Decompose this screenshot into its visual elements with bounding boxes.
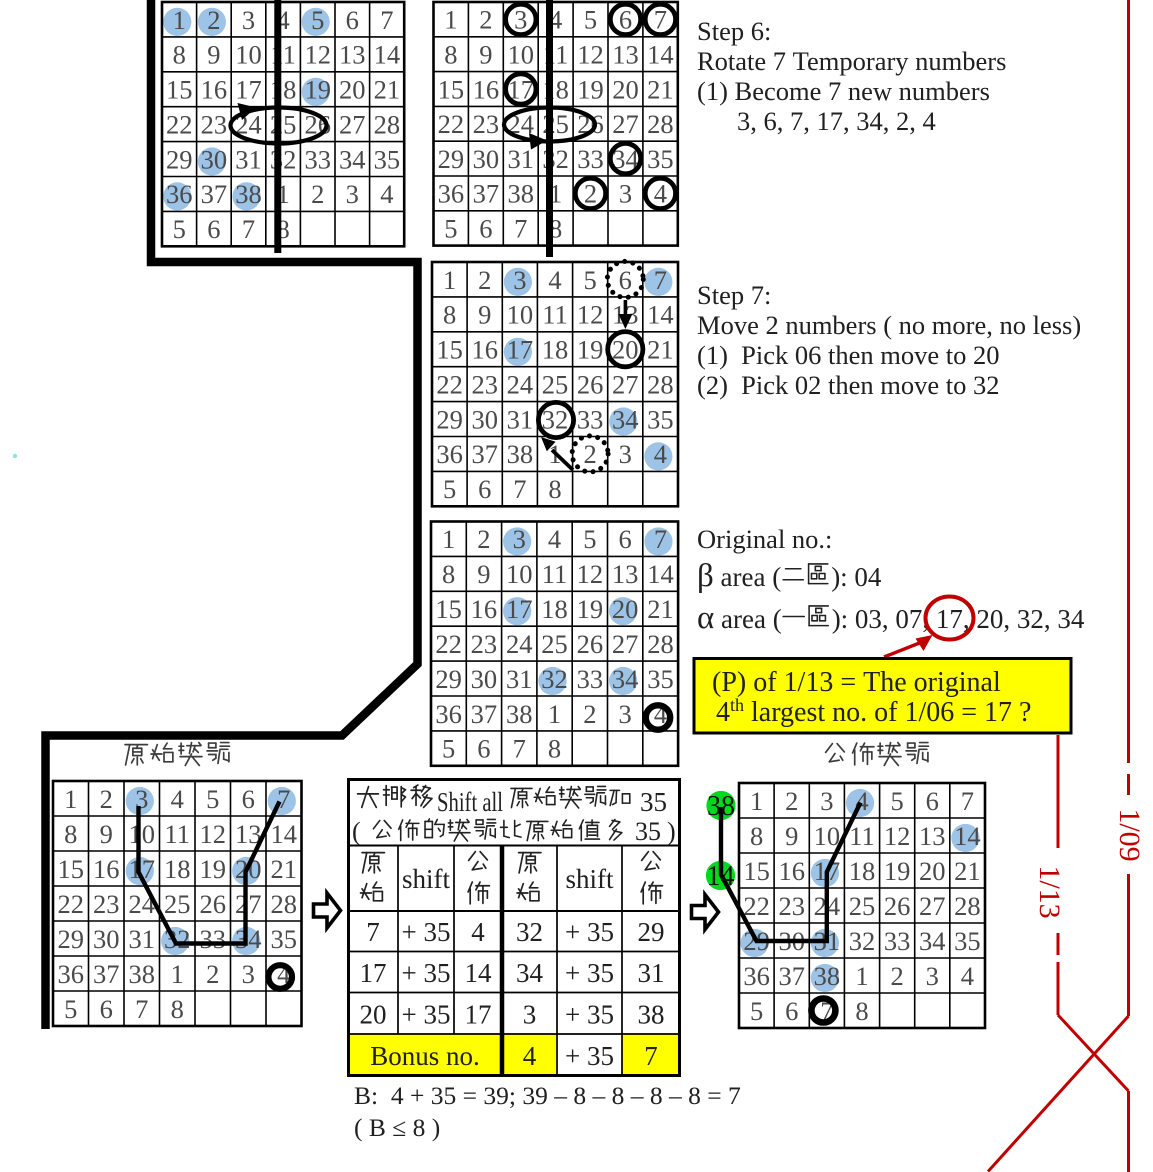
svg-text:9: 9: [785, 821, 798, 851]
svg-text:20: 20: [612, 335, 639, 365]
svg-text:36: 36: [58, 959, 85, 989]
svg-text:38: 38: [235, 179, 262, 209]
svg-text:14: 14: [374, 40, 401, 70]
svg-text:9: 9: [100, 819, 113, 849]
svg-text:18: 18: [164, 854, 191, 884]
svg-text:13: 13: [919, 821, 946, 851]
svg-text:22: 22: [58, 889, 85, 919]
svg-text:18: 18: [542, 335, 569, 365]
svg-text:14: 14: [647, 559, 674, 589]
svg-text:10: 10: [129, 819, 156, 849]
svg-text:5: 5: [442, 734, 455, 764]
svg-text:19: 19: [577, 594, 604, 624]
svg-text:9: 9: [478, 300, 491, 330]
svg-text:13: 13: [612, 559, 639, 589]
svg-text:4: 4: [716, 697, 730, 728]
svg-text:+ 35: + 35: [565, 1000, 614, 1030]
svg-text:17: 17: [360, 958, 387, 988]
svg-text:34: 34: [612, 664, 639, 694]
svg-text:th: th: [730, 695, 744, 715]
svg-text:23: 23: [471, 629, 498, 659]
svg-text:23: 23: [778, 891, 805, 921]
svg-text:): 03, 07, 17, 20, 32, 34: ): 03, 07, 17, 20, 32, 34: [832, 604, 1085, 634]
svg-text:14: 14: [647, 300, 674, 330]
svg-text:33: 33: [884, 926, 911, 956]
svg-text:9: 9: [477, 559, 490, 589]
svg-text:35: 35: [374, 144, 401, 174]
svg-text:12: 12: [577, 40, 604, 70]
svg-text:33: 33: [577, 664, 604, 694]
svg-text:29: 29: [58, 924, 85, 954]
svg-text:35: 35: [640, 787, 667, 817]
svg-text:21: 21: [647, 74, 674, 104]
svg-text:8: 8: [548, 474, 561, 504]
svg-text:8: 8: [750, 821, 763, 851]
svg-text:32: 32: [516, 917, 543, 947]
svg-text:(P) of 1/13 = The original: (P) of 1/13 = The original: [712, 667, 1001, 698]
svg-text:37: 37: [201, 179, 228, 209]
svg-text:2: 2: [583, 699, 596, 729]
svg-text:Step 6:: Step 6:: [697, 16, 771, 46]
svg-text:12: 12: [577, 300, 604, 330]
svg-text:5: 5: [173, 214, 186, 244]
svg-text:+ 35: + 35: [565, 958, 614, 988]
svg-text:16: 16: [471, 594, 498, 624]
svg-text:12: 12: [884, 821, 911, 851]
svg-text:30: 30: [471, 664, 498, 694]
svg-text:2: 2: [583, 439, 596, 469]
svg-text:34: 34: [235, 924, 262, 954]
svg-text:21: 21: [374, 75, 401, 105]
svg-text:20: 20: [919, 856, 946, 886]
svg-text:27: 27: [235, 889, 262, 919]
svg-text:1: 1: [443, 265, 456, 295]
svg-text:6: 6: [100, 994, 113, 1024]
svg-text:14: 14: [465, 958, 493, 988]
svg-text:27: 27: [612, 109, 639, 139]
svg-text:11: 11: [270, 40, 296, 70]
svg-text:27: 27: [339, 109, 366, 139]
svg-text:β: β: [697, 558, 714, 594]
svg-text:largest no. of 1/06 = 17 ?: largest no. of 1/06 = 17 ?: [744, 697, 1031, 728]
svg-text:14: 14: [271, 819, 298, 849]
svg-text:32: 32: [542, 404, 569, 434]
svg-text:8: 8: [855, 996, 868, 1026]
svg-text:35: 35: [647, 404, 674, 434]
svg-text:4: 4: [654, 179, 667, 209]
svg-text:19: 19: [577, 74, 604, 104]
svg-text:16: 16: [473, 74, 500, 104]
svg-text:5: 5: [584, 5, 597, 35]
svg-text:1: 1: [173, 5, 186, 35]
svg-text:32: 32: [270, 144, 297, 174]
svg-text:29: 29: [638, 917, 665, 947]
svg-text:24: 24: [507, 369, 534, 399]
svg-text:8: 8: [443, 300, 456, 330]
svg-text:2: 2: [584, 179, 597, 209]
svg-text:+ 35: + 35: [402, 1000, 451, 1030]
svg-text:10: 10: [508, 40, 535, 70]
svg-text:5: 5: [444, 214, 457, 244]
svg-text:22: 22: [435, 629, 462, 659]
svg-text:16: 16: [201, 75, 228, 105]
svg-text:10: 10: [235, 40, 262, 70]
svg-text:4: 4: [548, 265, 561, 295]
svg-text:31: 31: [129, 924, 156, 954]
svg-text:17: 17: [465, 1000, 492, 1030]
svg-text:35: 35: [647, 664, 674, 694]
svg-text:7: 7: [513, 734, 526, 764]
svg-text:2: 2: [479, 5, 492, 35]
svg-text:16: 16: [93, 854, 120, 884]
svg-text:27: 27: [612, 629, 639, 659]
svg-text:7: 7: [380, 5, 393, 35]
svg-text:30: 30: [473, 144, 500, 174]
svg-text:1/13: 1/13: [1033, 865, 1066, 918]
svg-text:36: 36: [166, 179, 193, 209]
svg-text:5: 5: [206, 784, 219, 814]
svg-text:32: 32: [541, 664, 568, 694]
svg-text:2: 2: [206, 959, 219, 989]
svg-text:30: 30: [201, 144, 228, 174]
svg-text:21: 21: [954, 856, 981, 886]
svg-text:12: 12: [200, 819, 227, 849]
svg-text:24: 24: [506, 629, 533, 659]
svg-text:37: 37: [471, 699, 498, 729]
svg-text:2: 2: [785, 786, 798, 816]
svg-text:6: 6: [477, 734, 490, 764]
svg-text:31: 31: [506, 664, 533, 694]
svg-text:2: 2: [100, 784, 113, 814]
svg-text:( B ≤ 8 ): ( B ≤ 8 ): [354, 1113, 440, 1142]
svg-text:15: 15: [436, 335, 463, 365]
svg-text:23: 23: [471, 369, 498, 399]
svg-text:8: 8: [64, 819, 77, 849]
svg-text:32: 32: [849, 926, 876, 956]
svg-text:20: 20: [360, 1000, 387, 1030]
svg-text:22: 22: [166, 109, 193, 139]
svg-text:6: 6: [619, 5, 632, 35]
svg-text:3: 3: [242, 5, 255, 35]
svg-text:15: 15: [743, 856, 770, 886]
svg-text:3: 3: [514, 5, 527, 35]
svg-text:38: 38: [814, 961, 841, 991]
svg-text:28: 28: [647, 629, 674, 659]
svg-text:3: 3: [926, 961, 939, 991]
svg-text:21: 21: [647, 335, 674, 365]
svg-text:7: 7: [961, 786, 974, 816]
svg-text:18: 18: [270, 75, 297, 105]
svg-text:26: 26: [200, 889, 227, 919]
svg-text:+ 35: + 35: [565, 1041, 614, 1071]
svg-text:7: 7: [277, 784, 290, 814]
svg-text:37: 37: [473, 179, 500, 209]
svg-text:13: 13: [339, 40, 366, 70]
svg-text:38: 38: [129, 959, 156, 989]
svg-text:29: 29: [435, 664, 462, 694]
svg-text:8: 8: [548, 734, 561, 764]
svg-text:28: 28: [647, 109, 674, 139]
svg-text:19: 19: [200, 854, 227, 884]
svg-text:30: 30: [93, 924, 120, 954]
svg-text:(1) Become 7 new numbers: (1) Become 7 new numbers: [697, 76, 990, 106]
svg-text:14: 14: [954, 821, 981, 851]
svg-text:12: 12: [304, 40, 331, 70]
svg-text:25: 25: [164, 889, 191, 919]
svg-text:4: 4: [961, 961, 974, 991]
svg-text:38: 38: [507, 439, 534, 469]
svg-text:Bonus no.: Bonus no.: [370, 1041, 480, 1071]
svg-text:2: 2: [478, 265, 491, 295]
svg-text:1: 1: [855, 961, 868, 991]
svg-text:3: 3: [242, 959, 255, 989]
svg-text:3: 3: [513, 524, 526, 554]
svg-text:19: 19: [884, 856, 911, 886]
svg-text:26: 26: [577, 629, 604, 659]
svg-text:3: 3: [618, 699, 631, 729]
svg-text:10: 10: [506, 559, 533, 589]
svg-text:8: 8: [171, 994, 184, 1024]
svg-text:α: α: [697, 600, 714, 636]
svg-text:6: 6: [479, 214, 492, 244]
svg-text:17: 17: [235, 75, 262, 105]
svg-text:1: 1: [444, 5, 457, 35]
svg-text:37: 37: [471, 439, 498, 469]
svg-text:33: 33: [304, 144, 331, 174]
svg-text:23: 23: [93, 889, 120, 919]
svg-text:4: 4: [171, 784, 184, 814]
svg-text:17: 17: [507, 335, 534, 365]
svg-text:9: 9: [207, 40, 220, 70]
svg-text:34: 34: [339, 144, 366, 174]
svg-text:area (: area (: [714, 562, 781, 592]
svg-text:2: 2: [207, 5, 220, 35]
svg-text:2: 2: [477, 524, 490, 554]
svg-text:11: 11: [849, 821, 875, 851]
svg-text:34: 34: [919, 926, 946, 956]
svg-text:3: 3: [619, 439, 632, 469]
svg-text:5: 5: [64, 994, 77, 1024]
svg-text:20: 20: [612, 74, 639, 104]
svg-text:Step 7:: Step 7:: [697, 280, 771, 310]
svg-text:27: 27: [612, 369, 639, 399]
svg-text:+ 35: + 35: [402, 917, 451, 947]
svg-text:1: 1: [548, 699, 561, 729]
svg-text:8: 8: [173, 40, 186, 70]
svg-text:18: 18: [849, 856, 876, 886]
svg-text:6: 6: [242, 784, 255, 814]
svg-text:3, 6, 7, 17, 34, 2, 4: 3, 6, 7, 17, 34, 2, 4: [737, 106, 936, 136]
svg-text:6: 6: [618, 524, 631, 554]
svg-text:5: 5: [750, 996, 763, 1026]
svg-text:11: 11: [542, 300, 568, 330]
svg-text:30: 30: [471, 404, 498, 434]
svg-text:36: 36: [435, 699, 462, 729]
svg-text:38: 38: [508, 179, 535, 209]
svg-text:31: 31: [507, 404, 534, 434]
svg-text:15: 15: [438, 74, 465, 104]
svg-text:shift: shift: [402, 864, 451, 894]
svg-text:28: 28: [954, 891, 981, 921]
svg-text:22: 22: [743, 891, 770, 921]
svg-text:+ 35: + 35: [565, 917, 614, 947]
svg-text:4: 4: [654, 439, 667, 469]
svg-text:4: 4: [523, 1041, 537, 1071]
svg-text:5: 5: [443, 474, 456, 504]
svg-text:10: 10: [507, 300, 534, 330]
svg-text:33: 33: [577, 144, 604, 174]
svg-text:3: 3: [820, 786, 833, 816]
svg-text:37: 37: [93, 959, 120, 989]
svg-text:8: 8: [444, 40, 457, 70]
svg-text:shift: shift: [565, 864, 614, 894]
svg-text:23: 23: [473, 109, 500, 139]
svg-text:2: 2: [890, 961, 903, 991]
svg-text:3: 3: [513, 265, 526, 295]
svg-text:18: 18: [541, 594, 568, 624]
svg-text:7: 7: [366, 917, 380, 947]
svg-text:5: 5: [890, 786, 903, 816]
svg-text:34: 34: [612, 404, 639, 434]
svg-text:13: 13: [612, 40, 639, 70]
svg-text:35: 35: [647, 144, 674, 174]
svg-text:21: 21: [647, 594, 674, 624]
svg-text:14: 14: [647, 40, 674, 70]
svg-text:12: 12: [577, 559, 604, 589]
svg-text:(2) Pick 02 then move to 32: (2) Pick 02 then move to 32: [697, 370, 1000, 400]
svg-text:4: 4: [380, 179, 393, 209]
svg-text:6: 6: [346, 5, 359, 35]
svg-text:1: 1: [171, 959, 184, 989]
svg-text:28: 28: [374, 109, 401, 139]
svg-text:6: 6: [785, 996, 798, 1026]
svg-text:): 04: ): 04: [831, 562, 882, 592]
svg-text:5: 5: [311, 5, 324, 35]
svg-text:19: 19: [304, 75, 331, 105]
svg-text:29: 29: [166, 144, 193, 174]
svg-text:9: 9: [479, 40, 492, 70]
svg-text:Original no.:: Original no.:: [697, 524, 832, 554]
svg-text:3: 3: [523, 1000, 537, 1030]
svg-text:Move 2 numbers ( no more, no l: Move 2 numbers ( no more, no less): [697, 310, 1081, 340]
svg-text:25: 25: [541, 629, 568, 659]
svg-text:22: 22: [438, 109, 465, 139]
svg-text:3: 3: [619, 179, 632, 209]
svg-text:26: 26: [577, 369, 604, 399]
svg-text:4: 4: [471, 917, 485, 947]
svg-text:35: 35: [271, 924, 298, 954]
svg-text:23: 23: [201, 109, 228, 139]
svg-text:25: 25: [849, 891, 876, 921]
svg-text:27: 27: [919, 891, 946, 921]
svg-text:6: 6: [619, 265, 632, 295]
svg-text:(1) Pick 06 then move to 20: (1) Pick 06 then move to 20: [697, 340, 1000, 370]
svg-text:15: 15: [166, 75, 193, 105]
svg-text:6: 6: [207, 214, 220, 244]
svg-text:31: 31: [508, 144, 535, 174]
svg-text:6: 6: [478, 474, 491, 504]
svg-text:35: 35: [954, 926, 981, 956]
svg-text:3: 3: [346, 179, 359, 209]
svg-text:7: 7: [514, 214, 527, 244]
svg-text:area (: area (: [714, 604, 781, 634]
svg-text:25: 25: [542, 369, 569, 399]
svg-text:1: 1: [442, 524, 455, 554]
svg-text:36: 36: [436, 439, 463, 469]
svg-text:33: 33: [577, 404, 604, 434]
svg-text:10: 10: [814, 821, 841, 851]
svg-text:7: 7: [135, 994, 148, 1024]
svg-text:16: 16: [778, 856, 805, 886]
svg-text:29: 29: [436, 404, 463, 434]
svg-text:36: 36: [743, 961, 770, 991]
svg-text:37: 37: [778, 961, 805, 991]
svg-text:33: 33: [200, 924, 227, 954]
svg-text:38: 38: [506, 699, 533, 729]
svg-text:1: 1: [750, 786, 763, 816]
svg-text:7: 7: [513, 474, 526, 504]
svg-text:7: 7: [654, 524, 667, 554]
svg-text:7: 7: [654, 265, 667, 295]
svg-text:7: 7: [242, 214, 255, 244]
svg-text:7: 7: [644, 1041, 658, 1071]
svg-text:26: 26: [884, 891, 911, 921]
svg-text:31: 31: [638, 958, 665, 988]
svg-text:1/09: 1/09: [1113, 808, 1146, 861]
svg-text:5: 5: [583, 524, 596, 554]
svg-text:11: 11: [542, 559, 568, 589]
svg-text:14: 14: [707, 861, 735, 892]
svg-text:6: 6: [926, 786, 939, 816]
svg-text:11: 11: [164, 819, 190, 849]
svg-text:4: 4: [548, 524, 561, 554]
svg-text:8: 8: [442, 559, 455, 589]
svg-text:5: 5: [583, 265, 596, 295]
svg-text:35: 35: [635, 817, 661, 846]
svg-text:2: 2: [311, 179, 324, 209]
svg-text:36: 36: [438, 179, 465, 209]
svg-text:+ 35: + 35: [402, 958, 451, 988]
svg-text:15: 15: [435, 594, 462, 624]
svg-text:22: 22: [436, 369, 463, 399]
svg-text:Shift all: Shift all: [437, 787, 503, 817]
svg-text:28: 28: [647, 369, 674, 399]
svg-text:20: 20: [339, 75, 366, 105]
svg-text:21: 21: [271, 854, 298, 884]
svg-text:25: 25: [270, 109, 297, 139]
svg-text:31: 31: [235, 144, 262, 174]
svg-text:1: 1: [64, 784, 77, 814]
svg-text:17: 17: [506, 594, 533, 624]
svg-text:38: 38: [638, 1000, 665, 1030]
svg-text:7: 7: [654, 5, 667, 35]
svg-text:28: 28: [271, 889, 298, 919]
svg-text:15: 15: [58, 854, 85, 884]
svg-text:29: 29: [438, 144, 465, 174]
svg-text:19: 19: [577, 335, 604, 365]
svg-text:38: 38: [707, 791, 735, 822]
svg-text:20: 20: [612, 594, 639, 624]
svg-text:): ): [667, 817, 676, 846]
svg-text:34: 34: [516, 958, 544, 988]
svg-text:16: 16: [471, 335, 498, 365]
svg-text:B: 4 + 35 = 39; 39 – 8 – 8 –: B: 4 + 35 = 39; 39 – 8 – 8 – 8 – 8 = 7: [354, 1081, 741, 1110]
svg-text:Rotate 7 Temporary numbers: Rotate 7 Temporary numbers: [697, 46, 1006, 76]
svg-text:(: (: [352, 817, 361, 846]
